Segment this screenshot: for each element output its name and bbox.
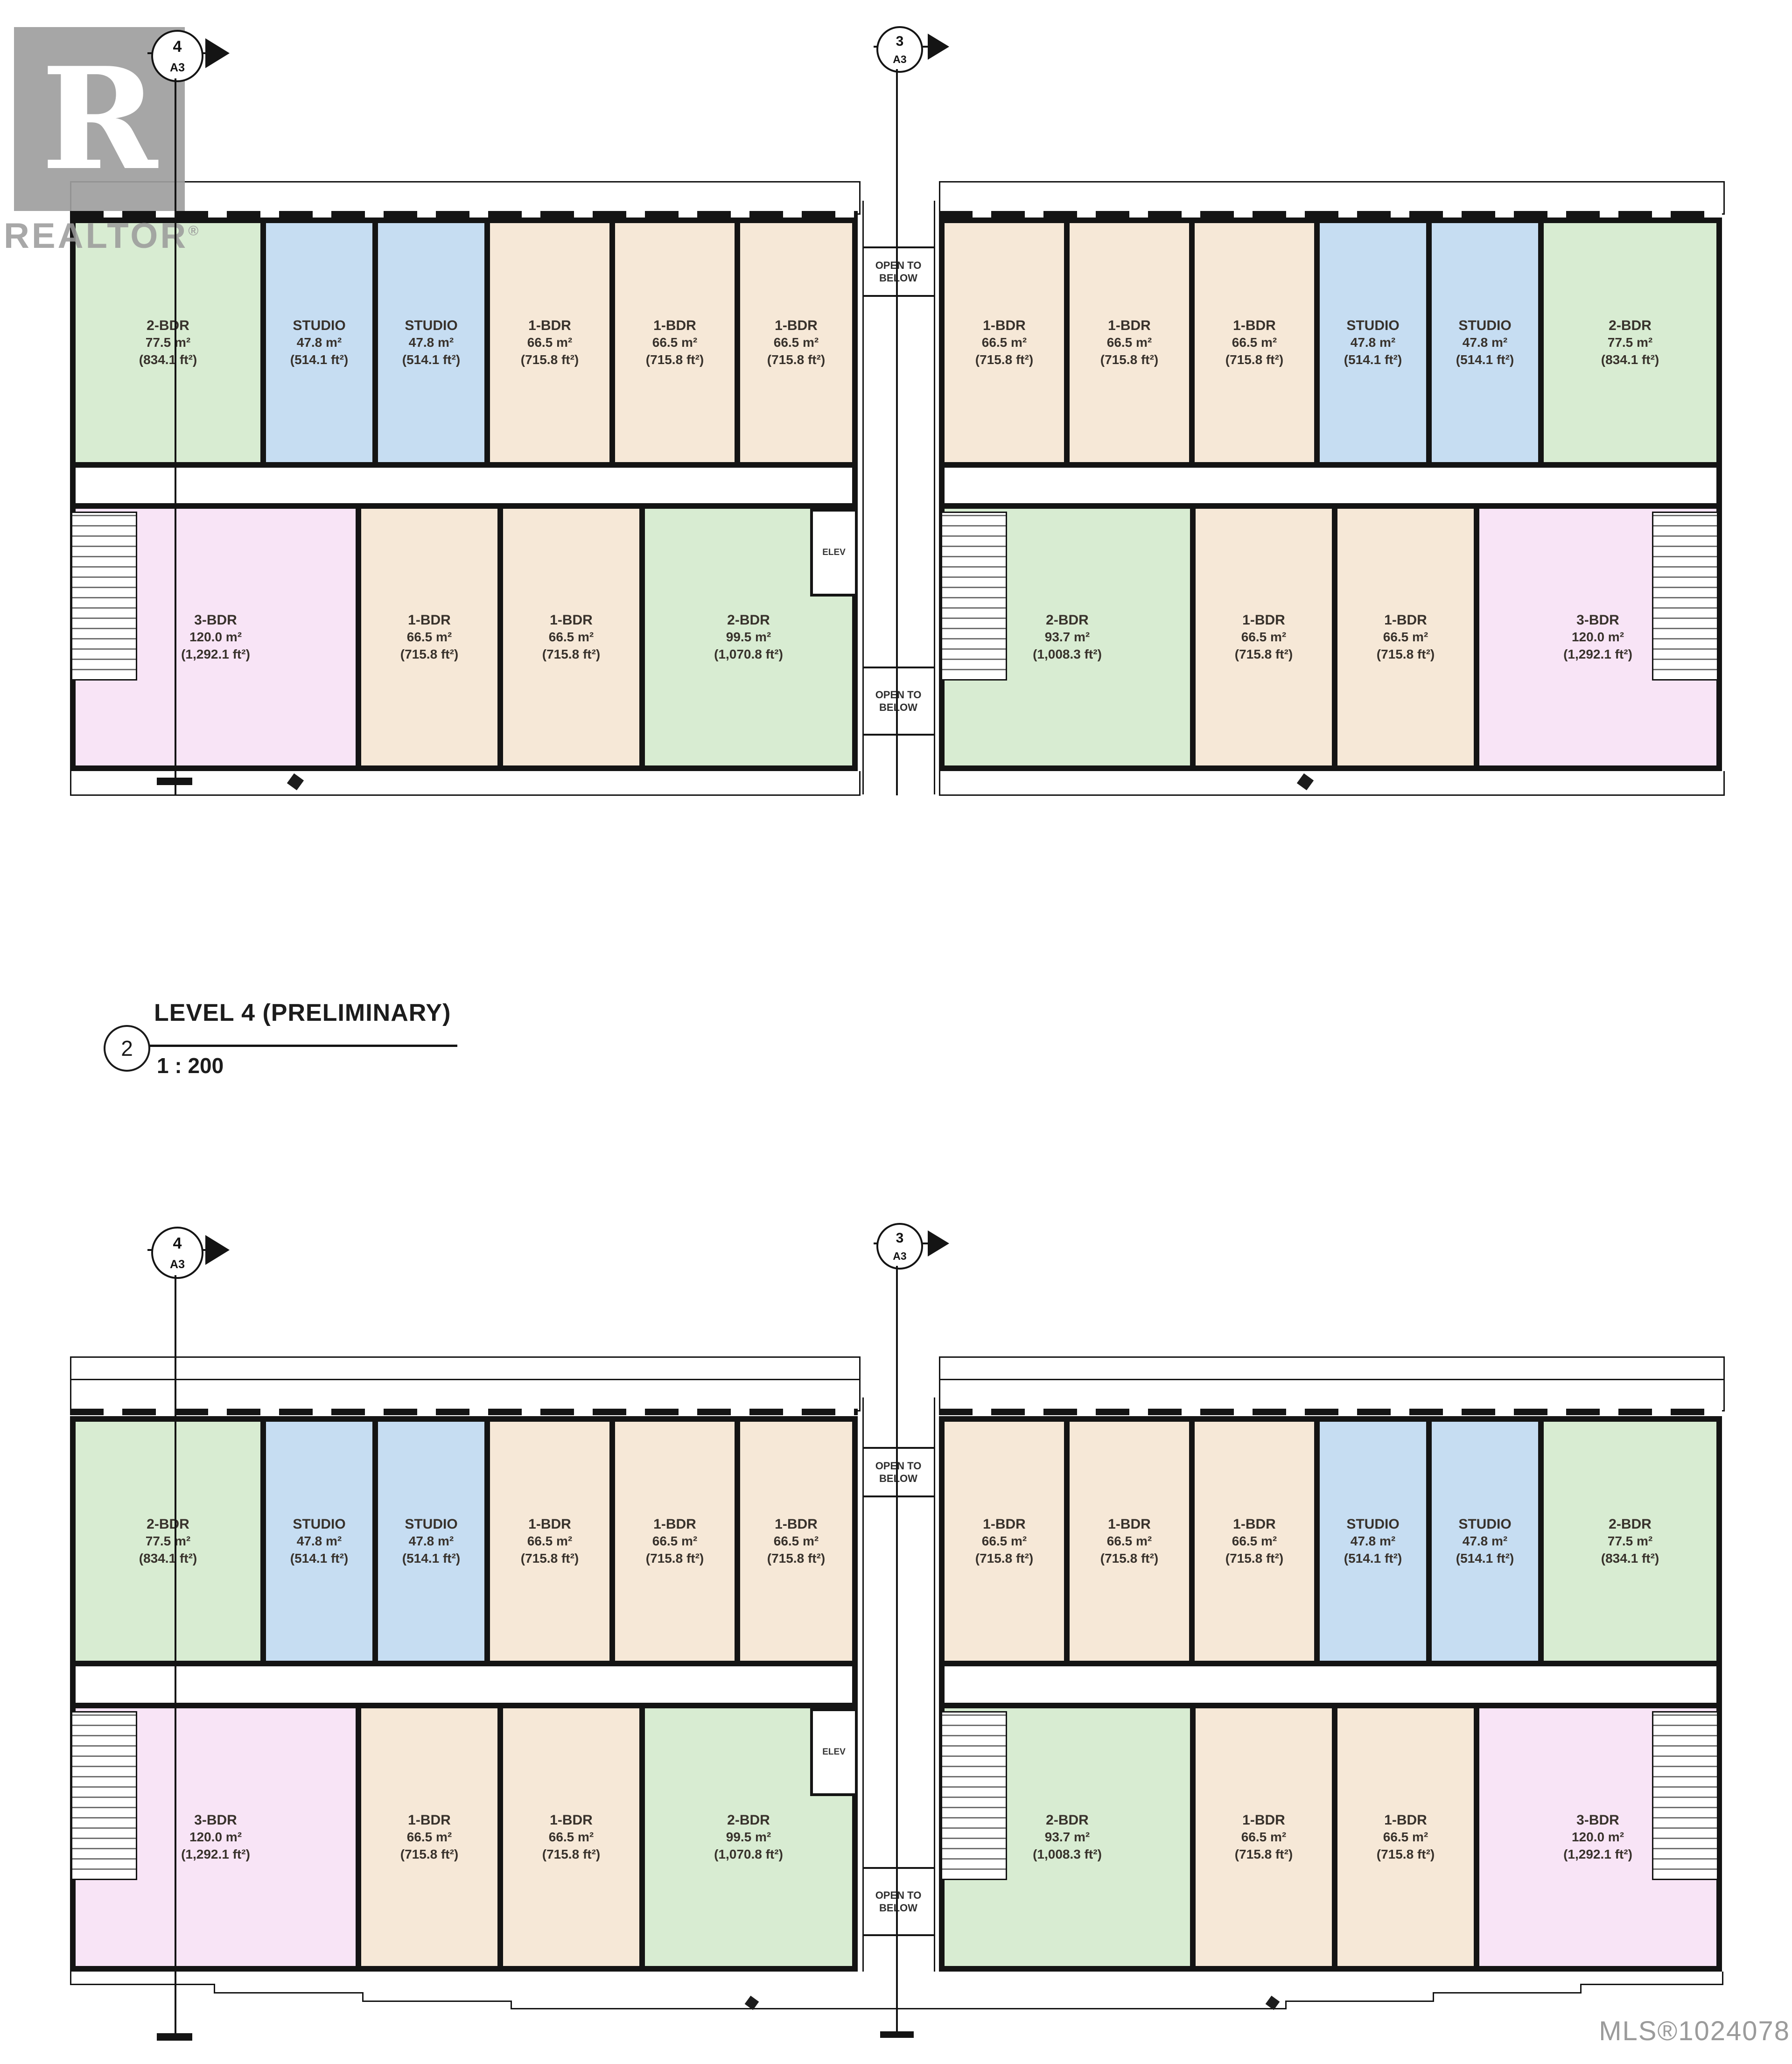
unit-1bdr: 1-BDR66.5 m²(715.8 ft²): [1196, 1708, 1332, 1966]
unit-area-m2: 66.5 m²: [982, 1533, 1027, 1550]
unit-area-m2: 47.8 m²: [409, 1533, 454, 1550]
unit-1bdr: 1-BDR66.5 m²(715.8 ft²): [1070, 223, 1189, 462]
unit-area-ft2: (834.1 ft²): [1601, 351, 1659, 368]
step-outline: [1580, 1984, 1582, 1994]
unit-area-ft2: (715.8 ft²): [1377, 646, 1435, 663]
unit-type-label: STUDIO: [293, 317, 345, 335]
unit-area-ft2: (715.8 ft²): [542, 1846, 600, 1863]
unit-1bdr: 1-BDR66.5 m²(715.8 ft²): [361, 1708, 497, 1966]
unit-area-m2: 66.5 m²: [774, 1533, 819, 1550]
balcony-strip: [70, 1379, 861, 1411]
corridor-wall: [934, 201, 935, 794]
section-marker-3: 3A3: [876, 26, 923, 73]
unit-type-label: 1-BDR: [1233, 1516, 1276, 1533]
corridor-wall: [862, 1397, 864, 1972]
unit-2bdr: 2-BDR77.5 m²(834.1 ft²): [1544, 223, 1716, 462]
unit-area-ft2: (514.1 ft²): [290, 1550, 348, 1567]
step-outline: [1580, 1984, 1722, 1985]
section-arrow-icon: [205, 38, 230, 68]
view-title: LEVEL 4 (PRELIMINARY): [154, 999, 451, 1027]
unit-area-ft2: (1,292.1 ft²): [1563, 646, 1632, 663]
section-sheet: A3: [893, 54, 906, 65]
unit-type-label: 1-BDR: [983, 1516, 1026, 1533]
unit-area-ft2: (715.8 ft²): [975, 1550, 1033, 1567]
unit-1bdr: 1-BDR66.5 m²(715.8 ft²): [1195, 223, 1314, 462]
unit-area-m2: 47.8 m²: [1351, 1533, 1396, 1550]
open-to-below-label: BELOW: [879, 272, 917, 285]
unit-area-ft2: (715.8 ft²): [542, 646, 600, 663]
unit-area-ft2: (514.1 ft²): [1344, 351, 1402, 368]
unit-area-ft2: (514.1 ft²): [290, 351, 348, 368]
unit-type-label: 1-BDR: [775, 317, 818, 335]
view-number-circle: 2: [104, 1025, 150, 1072]
unit-studio: STUDIO47.8 m²(514.1 ft²): [1320, 223, 1426, 462]
unit-area-ft2: (715.8 ft²): [1377, 1846, 1435, 1863]
open-to-below-label: BELOW: [879, 1472, 917, 1485]
section-cut-line: [896, 69, 898, 795]
window-wall: [939, 1409, 1722, 1415]
unit-type-label: 1-BDR: [408, 1811, 451, 1829]
unit-type-label: STUDIO: [405, 317, 457, 335]
unit-area-m2: 66.5 m²: [1241, 1829, 1287, 1846]
step-outline: [1433, 1992, 1580, 1994]
view-scale: 1 : 200: [157, 1053, 224, 1078]
unit-area-ft2: (715.8 ft²): [975, 351, 1033, 368]
unit-studio: STUDIO47.8 m²(514.1 ft²): [266, 223, 372, 462]
side-wall: [70, 1416, 76, 1972]
unit-area-m2: 47.8 m²: [409, 334, 454, 351]
unit-area-m2: 77.5 m²: [1608, 1533, 1653, 1550]
unit-1bdr: 1-BDR66.5 m²(715.8 ft²): [503, 509, 639, 765]
unit-area-ft2: (514.1 ft²): [1456, 351, 1514, 368]
elevator-label: ELEV: [822, 1747, 846, 1757]
section-arrow-icon: [205, 1235, 230, 1265]
unit-area-m2: 66.5 m²: [1383, 1829, 1428, 1846]
unit-area-m2: 47.8 m²: [1351, 334, 1396, 351]
unit-type-label: 1-BDR: [1242, 611, 1285, 629]
step-outline: [214, 1992, 362, 1994]
unit-type-label: 1-BDR: [1384, 611, 1427, 629]
unit-area-m2: 47.8 m²: [297, 1533, 342, 1550]
open-to-below-label: OPEN TO: [875, 1460, 922, 1473]
unit-type-label: 1-BDR: [528, 317, 571, 335]
unit-1bdr: 1-BDR66.5 m²(715.8 ft²): [490, 1422, 609, 1661]
floor-plan-sheet: 2-BDR77.5 m²(834.1 ft²) STUDIO47.8 m²(51…: [0, 0, 1792, 2064]
unit-type-label: 2-BDR: [1609, 1516, 1652, 1533]
unit-type-label: STUDIO: [293, 1516, 345, 1533]
step-outline: [1722, 1972, 1723, 1985]
parapet-strip: [939, 1356, 1725, 1382]
section-sheet: A3: [893, 1251, 906, 1262]
unit-1bdr: 1-BDR66.5 m²(715.8 ft²): [945, 223, 1064, 462]
unit-area-ft2: (1,008.3 ft²): [1033, 646, 1102, 663]
balcony-strip: [939, 1379, 1725, 1411]
unit-type-label: 1-BDR: [408, 611, 451, 629]
unit-area-m2: 66.5 m²: [1232, 1533, 1277, 1550]
elevator-label: ELEV: [822, 548, 846, 558]
realtor-wordmark-text: REALTOR: [4, 216, 188, 256]
unit-area-m2: 99.5 m²: [726, 1829, 771, 1846]
section-arrow-icon: [928, 34, 949, 60]
unit-studio: STUDIO47.8 m²(514.1 ft²): [1432, 1422, 1538, 1661]
open-to-below-label: OPEN TO: [875, 259, 922, 272]
registered-symbol: ®: [188, 224, 201, 239]
unit-1bdr: 1-BDR66.5 m²(715.8 ft²): [615, 1422, 735, 1661]
open-to-below: OPEN TOBELOW: [862, 667, 934, 736]
unit-studio: STUDIO47.8 m²(514.1 ft²): [1320, 1422, 1426, 1661]
stairs: [1652, 512, 1718, 681]
unit-area-ft2: (715.8 ft²): [400, 1846, 458, 1863]
open-to-below: OPEN TOBELOW: [862, 1867, 934, 1936]
unit-1bdr: 1-BDR66.5 m²(715.8 ft²): [490, 223, 609, 462]
unit-type-label: 3-BDR: [194, 611, 237, 629]
unit-1bdr: 1-BDR66.5 m²(715.8 ft²): [740, 223, 852, 462]
unit-area-m2: 66.5 m²: [982, 334, 1027, 351]
unit-area-m2: 120.0 m²: [189, 629, 242, 646]
unit-area-ft2: (514.1 ft²): [1344, 1550, 1402, 1567]
unit-area-m2: 47.8 m²: [297, 334, 342, 351]
unit-1bdr: 1-BDR66.5 m²(715.8 ft²): [615, 223, 735, 462]
unit-type-label: STUDIO: [1346, 1516, 1399, 1533]
unit-type-label: 1-BDR: [1108, 317, 1151, 335]
unit-area-ft2: (715.8 ft²): [1235, 646, 1293, 663]
section-cut-line: [175, 78, 176, 795]
stairs: [941, 1711, 1007, 1880]
unit-1bdr: 1-BDR66.5 m²(715.8 ft²): [1196, 509, 1332, 765]
unit-area-m2: 77.5 m²: [146, 334, 191, 351]
side-wall: [939, 1416, 945, 1972]
step-outline: [511, 2008, 1285, 2009]
unit-area-m2: 120.0 m²: [1572, 629, 1624, 646]
unit-1bdr: 1-BDR66.5 m²(715.8 ft²): [503, 1708, 639, 1966]
open-to-below-label: BELOW: [879, 701, 917, 714]
section-sheet: A3: [170, 62, 185, 74]
unit-type-label: 1-BDR: [1108, 1516, 1151, 1533]
unit-1bdr: 1-BDR66.5 m²(715.8 ft²): [740, 1422, 852, 1661]
stairs: [71, 1711, 137, 1880]
side-wall: [1716, 1416, 1722, 1972]
unit-area-m2: 99.5 m²: [726, 629, 771, 646]
unit-area-ft2: (715.8 ft²): [767, 1550, 825, 1567]
unit-1bdr: 1-BDR66.5 m²(715.8 ft²): [1195, 1422, 1314, 1661]
section-arrow-icon: [928, 1230, 949, 1257]
unit-2bdr: 2-BDR77.5 m²(834.1 ft²): [76, 1422, 260, 1661]
unit-type-label: 1-BDR: [983, 317, 1026, 335]
unit-type-label: 2-BDR: [147, 317, 189, 335]
unit-area-m2: 66.5 m²: [549, 1829, 594, 1846]
lower-balcony-strip: [939, 771, 1725, 796]
unit-area-m2: 66.5 m²: [407, 1829, 452, 1846]
title-underline: [149, 1045, 457, 1047]
balcony-strip: [70, 181, 861, 215]
unit-area-ft2: (715.8 ft²): [1100, 1550, 1158, 1567]
unit-area-m2: 120.0 m²: [1572, 1829, 1624, 1846]
unit-area-m2: 47.8 m²: [1463, 1533, 1508, 1550]
unit-area-m2: 93.7 m²: [1045, 1829, 1090, 1846]
open-to-below-label: OPEN TO: [875, 1889, 922, 1902]
unit-area-ft2: (715.8 ft²): [767, 351, 825, 368]
unit-area-m2: 93.7 m²: [1045, 629, 1090, 646]
unit-area-ft2: (1,292.1 ft²): [1563, 1846, 1632, 1863]
unit-1bdr: 1-BDR66.5 m²(715.8 ft²): [1337, 1708, 1474, 1966]
section-marker-4: 4A3: [151, 30, 203, 82]
side-wall: [939, 218, 945, 771]
side-wall: [1716, 218, 1722, 771]
stairs: [941, 512, 1007, 681]
step-outline: [70, 1984, 214, 1985]
window-wall: [70, 1409, 858, 1415]
realtor-wordmark: REALTOR®: [4, 216, 246, 256]
unit-type-label: STUDIO: [405, 1516, 457, 1533]
side-wall: [70, 218, 76, 771]
step-outline: [70, 1972, 71, 1985]
unit-area-m2: 66.5 m²: [1107, 1533, 1152, 1550]
unit-area-ft2: (514.1 ft²): [402, 351, 460, 368]
unit-studio: STUDIO47.8 m²(514.1 ft²): [378, 223, 484, 462]
mls-number: MLS®1024078: [1521, 2015, 1790, 2047]
unit-area-ft2: (715.8 ft²): [400, 646, 458, 663]
unit-area-ft2: (715.8 ft²): [1100, 351, 1158, 368]
elevator: ELEV: [810, 509, 858, 597]
unit-area-ft2: (715.8 ft²): [646, 1550, 704, 1567]
section-number: 3: [896, 35, 904, 49]
unit-type-label: 2-BDR: [1046, 1811, 1089, 1829]
unit-area-m2: 66.5 m²: [1232, 334, 1277, 351]
unit-1bdr: 1-BDR66.5 m²(715.8 ft²): [1070, 1422, 1189, 1661]
unit-type-label: 1-BDR: [1384, 1811, 1427, 1829]
section-sheet: A3: [170, 1259, 185, 1271]
step-outline: [362, 2001, 511, 2002]
unit-type-label: 1-BDR: [550, 1811, 593, 1829]
unit-2bdr: 2-BDR77.5 m²(834.1 ft²): [1544, 1422, 1716, 1661]
unit-type-label: 3-BDR: [194, 1811, 237, 1829]
unit-area-m2: 66.5 m²: [652, 334, 698, 351]
unit-area-ft2: (715.8 ft²): [1225, 351, 1283, 368]
corridor-wall: [862, 201, 864, 794]
unit-area-ft2: (715.8 ft²): [521, 351, 579, 368]
open-to-below: OPEN TOBELOW: [862, 1447, 934, 1497]
unit-type-label: 2-BDR: [1609, 317, 1652, 335]
unit-area-ft2: (834.1 ft²): [1601, 1550, 1659, 1567]
window-wall: [939, 211, 1722, 218]
unit-area-ft2: (514.1 ft²): [1456, 1550, 1514, 1567]
section-marker-4: 4A3: [151, 1227, 203, 1279]
open-to-below-label: BELOW: [879, 1902, 917, 1915]
unit-area-m2: 66.5 m²: [1241, 629, 1287, 646]
side-wall: [852, 218, 858, 771]
unit-area-ft2: (1,292.1 ft²): [181, 646, 250, 663]
unit-area-m2: 66.5 m²: [549, 629, 594, 646]
unit-area-ft2: (1,070.8 ft²): [714, 1846, 783, 1863]
section-marker-3: 3A3: [876, 1223, 923, 1270]
unit-area-m2: 66.5 m²: [1107, 334, 1152, 351]
section-cut-line: [175, 1275, 176, 2035]
realtor-logo-letter: R: [41, 49, 157, 189]
section-line-tick: [157, 778, 192, 785]
unit-area-m2: 66.5 m²: [527, 1533, 573, 1550]
unit-type-label: 1-BDR: [653, 1516, 696, 1533]
step-outline: [1433, 1992, 1434, 2002]
unit-type-label: 2-BDR: [727, 611, 770, 629]
unit-type-label: 2-BDR: [727, 1811, 770, 1829]
unit-area-m2: 66.5 m²: [527, 334, 573, 351]
unit-2bdr: 2-BDR77.5 m²(834.1 ft²): [76, 223, 260, 462]
section-number: 3: [896, 1231, 904, 1245]
unit-type-label: 1-BDR: [550, 611, 593, 629]
unit-area-ft2: (834.1 ft²): [139, 1550, 197, 1567]
unit-area-ft2: (1,070.8 ft²): [714, 646, 783, 663]
corridor-wall: [934, 1397, 935, 1972]
step-outline: [1285, 2001, 1433, 2002]
open-to-below-label: OPEN TO: [875, 688, 922, 702]
unit-type-label: 1-BDR: [775, 1516, 818, 1533]
unit-area-m2: 77.5 m²: [146, 1533, 191, 1550]
unit-type-label: 1-BDR: [1242, 1811, 1285, 1829]
unit-studio: STUDIO47.8 m²(514.1 ft²): [266, 1422, 372, 1661]
unit-area-ft2: (715.8 ft²): [521, 1550, 579, 1567]
unit-type-label: 3-BDR: [1576, 1811, 1619, 1829]
unit-studio: STUDIO47.8 m²(514.1 ft²): [1432, 223, 1538, 462]
unit-type-label: STUDIO: [1458, 317, 1511, 335]
unit-type-label: 1-BDR: [528, 1516, 571, 1533]
unit-area-ft2: (834.1 ft²): [139, 351, 197, 368]
unit-type-label: STUDIO: [1458, 1516, 1511, 1533]
elevator: ELEV: [810, 1708, 858, 1796]
section-number: 4: [173, 1236, 182, 1251]
section-number: 4: [173, 39, 182, 55]
unit-area-ft2: (1,292.1 ft²): [181, 1846, 250, 1863]
unit-type-label: 1-BDR: [1233, 317, 1276, 335]
open-to-below: OPEN TOBELOW: [862, 246, 934, 297]
unit-1bdr: 1-BDR66.5 m²(715.8 ft²): [1337, 509, 1474, 765]
section-cut-line: [896, 1266, 898, 2033]
section-line-tick: [157, 2033, 192, 2041]
unit-type-label: 2-BDR: [1046, 611, 1089, 629]
unit-area-m2: 120.0 m²: [189, 1829, 242, 1846]
unit-type-label: 3-BDR: [1576, 611, 1619, 629]
unit-area-ft2: (715.8 ft²): [1235, 1846, 1293, 1863]
unit-area-ft2: (514.1 ft²): [402, 1550, 460, 1567]
unit-area-ft2: (715.8 ft²): [1225, 1550, 1283, 1567]
unit-type-label: STUDIO: [1346, 317, 1399, 335]
unit-studio: STUDIO47.8 m²(514.1 ft²): [378, 1422, 484, 1661]
unit-area-m2: 66.5 m²: [407, 629, 452, 646]
unit-area-m2: 66.5 m²: [1383, 629, 1428, 646]
view-number: 2: [121, 1036, 133, 1061]
unit-1bdr: 1-BDR66.5 m²(715.8 ft²): [361, 509, 497, 765]
unit-area-m2: 77.5 m²: [1608, 334, 1653, 351]
side-wall: [852, 1416, 858, 1972]
unit-1bdr: 1-BDR66.5 m²(715.8 ft²): [945, 1422, 1064, 1661]
section-line-tick: [880, 2031, 914, 2038]
unit-type-label: 1-BDR: [653, 317, 696, 335]
stairs: [1652, 1711, 1718, 1880]
unit-area-ft2: (1,008.3 ft²): [1033, 1846, 1102, 1863]
unit-area-m2: 66.5 m²: [652, 1533, 698, 1550]
unit-area-m2: 66.5 m²: [774, 334, 819, 351]
stairs: [71, 512, 137, 681]
unit-type-label: 2-BDR: [147, 1516, 189, 1533]
balcony-strip: [939, 181, 1725, 215]
unit-area-ft2: (715.8 ft²): [646, 351, 704, 368]
unit-area-m2: 47.8 m²: [1463, 334, 1508, 351]
parapet-strip: [70, 1356, 861, 1382]
